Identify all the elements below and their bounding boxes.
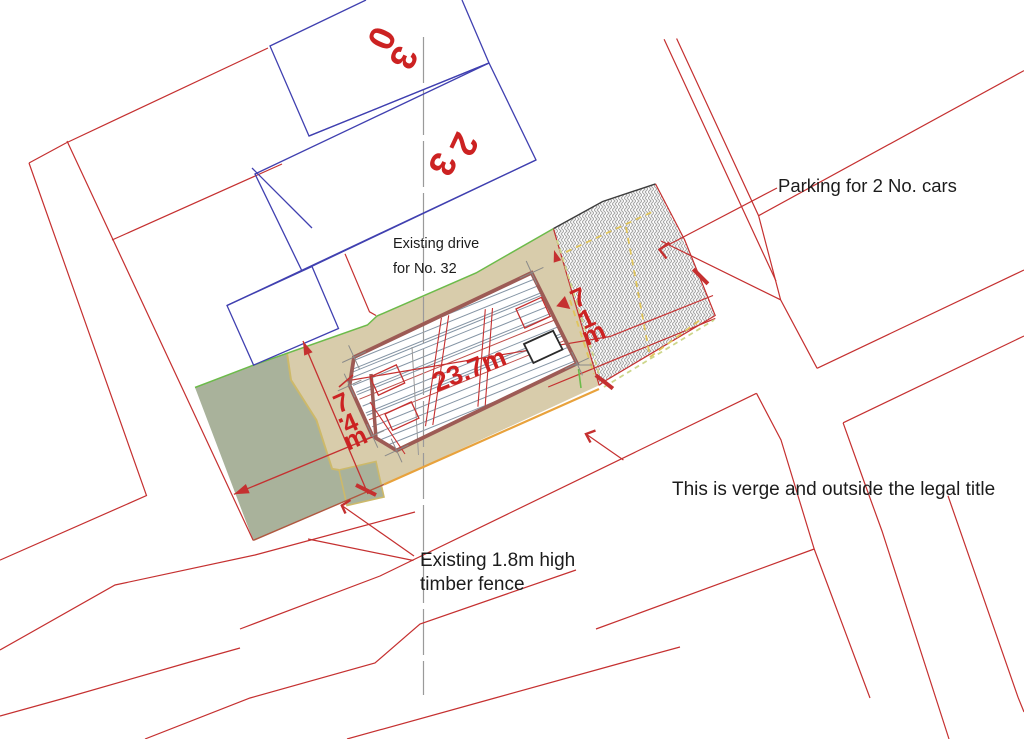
svg-text:3: 3 — [381, 40, 427, 75]
svg-text:Existing 1.8m high: Existing 1.8m high — [420, 550, 575, 571]
svg-text:Existing drive: Existing drive — [393, 236, 479, 252]
svg-text:timber fence: timber fence — [420, 574, 525, 595]
svg-text:This is verge and outside the: This is verge and outside the legal titl… — [672, 479, 995, 500]
svg-text:Parking for 2 No. cars: Parking for 2 No. cars — [778, 175, 957, 196]
svg-text:for No. 32: for No. 32 — [393, 261, 457, 277]
